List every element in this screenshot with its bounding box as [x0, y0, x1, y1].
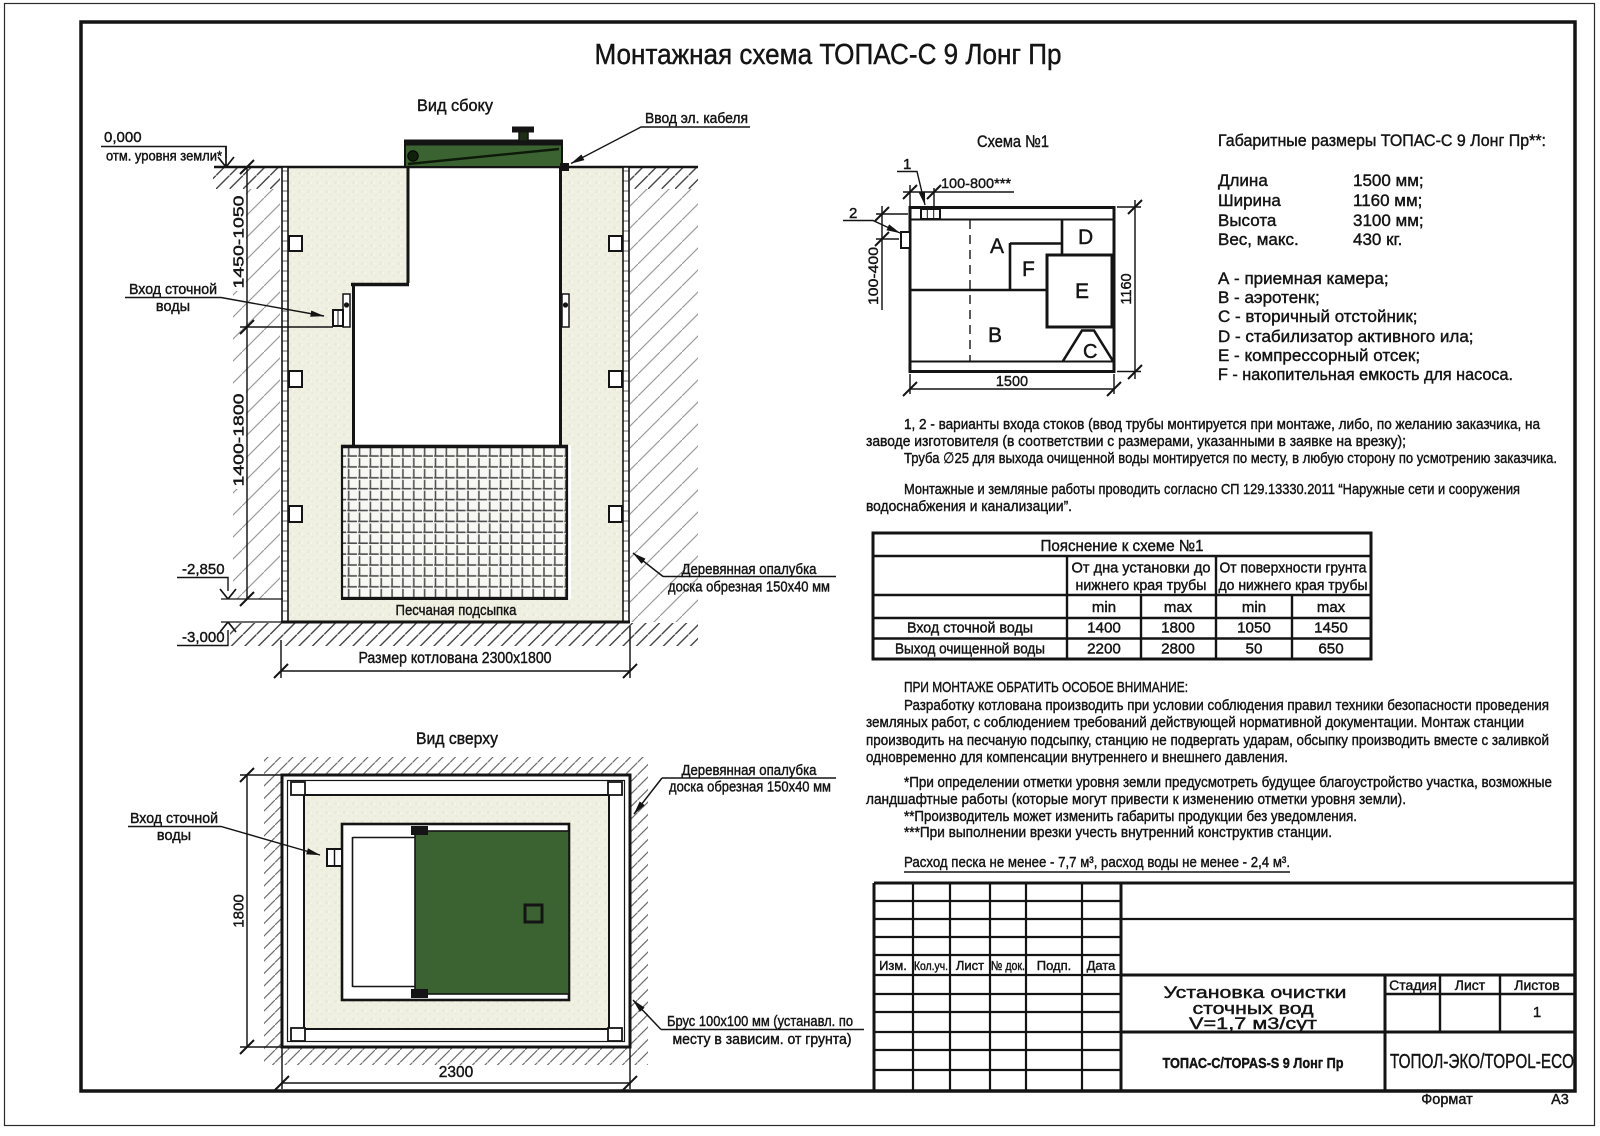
svg-text:1800: 1800 — [231, 894, 248, 927]
svg-text:F: F — [1022, 258, 1035, 281]
svg-text:F - накопительная емкость для: F - накопительная емкость для насоса. — [1218, 365, 1513, 384]
svg-text:D: D — [1078, 226, 1093, 249]
svg-text:ПРИ МОНТАЖЕ ОБРАТИТЬ ОСОБОЕ ВН: ПРИ МОНТАЖЕ ОБРАТИТЬ ОСОБОЕ ВНИМАНИЕ: — [904, 679, 1188, 696]
svg-text:1050: 1050 — [1237, 620, 1271, 637]
svg-text:заводе изготовителя (в соответ: заводе изготовителя (в соответствии с ра… — [866, 433, 1406, 450]
svg-text:1, 2 - варианты входа стоков: 1, 2 - варианты входа стоков (ввод трубы… — [904, 416, 1540, 433]
svg-text:отм. уровня земли*: отм. уровня земли* — [106, 149, 223, 164]
svg-text:доска обрезная 150х40 мм: доска обрезная 150х40 мм — [669, 780, 831, 796]
svg-text:D - стабилизатор активного ила: D - стабилизатор активного ила; — [1218, 327, 1474, 346]
svg-text:одновременно для компенсации в: одновременно для компенсации внутреннего… — [866, 749, 1288, 766]
svg-text:Лист: Лист — [956, 958, 984, 973]
svg-text:Ввод эл. кабеля: Ввод эл. кабеля — [645, 111, 748, 127]
svg-text:Вход сточной: Вход сточной — [129, 282, 217, 298]
svg-text:№ док.: № док. — [991, 958, 1025, 973]
svg-text:Монтажная схема ТОПАС-С 9 Лонг: Монтажная схема ТОПАС-С 9 Лонг Пр — [595, 39, 1062, 71]
svg-text:***При выполнении врезки учест: ***При выполнении врезки учесть внутренн… — [904, 824, 1332, 841]
svg-text:Длина: Длина — [1218, 171, 1268, 190]
svg-text:430 кг.: 430 кг. — [1353, 230, 1402, 249]
svg-text:Вход сточной воды: Вход сточной воды — [907, 620, 1033, 637]
svg-text:1160: 1160 — [1119, 273, 1135, 304]
svg-text:Дата: Дата — [1087, 958, 1117, 973]
svg-text:Ширина: Ширина — [1218, 191, 1281, 210]
svg-text:1400: 1400 — [1087, 620, 1121, 637]
svg-text:1400-1800: 1400-1800 — [231, 394, 248, 487]
svg-text:0,000: 0,000 — [104, 129, 142, 146]
svg-text:В - аэротенк;: В - аэротенк; — [1218, 288, 1320, 307]
svg-text:Лист: Лист — [1455, 977, 1486, 993]
svg-text:1500: 1500 — [996, 374, 1028, 390]
svg-text:Кол.уч.: Кол.уч. — [914, 959, 948, 973]
svg-text:От поверхности грунта: От поверхности грунта — [1220, 560, 1368, 577]
svg-text:max: max — [1317, 599, 1346, 616]
svg-text:Габаритные размеры ТОПАС-С 9 Л: Габаритные размеры ТОПАС-С 9 Лонг Пр**: — [1218, 131, 1546, 150]
svg-text:Деревянная опалубка: Деревянная опалубка — [682, 763, 818, 779]
svg-text:Подп.: Подп. — [1037, 958, 1072, 973]
svg-text:А - приемная камера;: А - приемная камера; — [1218, 269, 1389, 288]
svg-text:Вид сбоку: Вид сбоку — [417, 96, 493, 115]
svg-text:Высота: Высота — [1218, 211, 1277, 230]
svg-text:100-800***: 100-800*** — [941, 175, 1012, 191]
svg-text:1160 мм;: 1160 мм; — [1353, 191, 1422, 210]
svg-text:E: E — [1075, 280, 1089, 303]
svg-text:100-400: 100-400 — [865, 247, 881, 305]
svg-text:Е - компрессорный отсек;: Е - компрессорный отсек; — [1218, 346, 1420, 365]
svg-text:Листов: Листов — [1514, 977, 1560, 993]
svg-text:3100 мм;: 3100 мм; — [1353, 211, 1424, 230]
svg-text:1: 1 — [1533, 1004, 1541, 1021]
svg-text:Стадия: Стадия — [1389, 977, 1437, 993]
svg-text:Вес, макс.: Вес, макс. — [1218, 230, 1299, 249]
svg-text:нижнего края трубы: нижнего края трубы — [1076, 577, 1207, 594]
svg-text:-2,850: -2,850 — [182, 561, 225, 578]
svg-text:Размер котлована 2300х1800: Размер котлована 2300х1800 — [359, 650, 552, 667]
svg-text:Вид сверху: Вид сверху — [416, 729, 498, 748]
svg-text:1: 1 — [903, 156, 911, 173]
svg-text:земляных работ, с соблюдением: земляных работ, с соблюдением требований… — [866, 714, 1524, 731]
svg-text:Расход песка не менее - 7,7 м³: Расход песка не менее - 7,7 м³, расход в… — [904, 854, 1290, 871]
svg-text:воды: воды — [156, 299, 190, 315]
svg-text:ТОПАС-С/TOPAS-S 9 Лонг Пр: ТОПАС-С/TOPAS-S 9 Лонг Пр — [1163, 1055, 1344, 1072]
svg-text:Монтажные и земляные работы пр: Монтажные и земляные работы проводить со… — [904, 481, 1520, 498]
svg-text:1450: 1450 — [1314, 620, 1348, 637]
svg-text:до нижнего края трубы: до нижнего края трубы — [1219, 577, 1368, 594]
svg-text:ТОПОЛ-ЭКО/TOPOL-ECO: ТОПОЛ-ЭКО/TOPOL-ECO — [1390, 1051, 1574, 1073]
svg-text:водоснабжения и канализации”.: водоснабжения и канализации”. — [866, 498, 1072, 515]
svg-text:А3: А3 — [1551, 1092, 1569, 1108]
svg-text:min: min — [1092, 599, 1116, 616]
svg-text:B: B — [988, 324, 1002, 347]
svg-text:Деревянная опалубка: Деревянная опалубка — [682, 562, 818, 578]
svg-text:доска обрезная 150х40 мм: доска обрезная 150х40 мм — [668, 580, 830, 596]
svg-text:1450-1050: 1450-1050 — [231, 196, 248, 289]
svg-text:C: C — [1083, 341, 1097, 363]
svg-text:Песчаная подсыпка: Песчаная подсыпка — [396, 602, 518, 619]
svg-text:месту в зависим. от грунта): месту в зависим. от грунта) — [673, 1032, 852, 1048]
svg-text:2200: 2200 — [1087, 641, 1121, 658]
svg-text:V=1,7 м3/сут: V=1,7 м3/сут — [1189, 1015, 1318, 1033]
svg-text:производить на песчаную подсып: производить на песчаную подсыпку, станци… — [866, 732, 1549, 749]
svg-text:50: 50 — [1246, 641, 1263, 658]
svg-text:Брус 100х100 мм (устанавл. по: Брус 100х100 мм (устанавл. по — [667, 1014, 853, 1030]
svg-text:Формат: Формат — [1421, 1092, 1473, 1108]
svg-text:2300: 2300 — [439, 1064, 474, 1081]
svg-text:max: max — [1164, 599, 1193, 616]
svg-text:2: 2 — [849, 205, 857, 222]
svg-text:Выход очищенной воды: Выход очищенной воды — [895, 641, 1045, 658]
svg-text:Разработку котлована производи: Разработку котлована производить при усл… — [904, 697, 1549, 714]
svg-text:Вход сточной: Вход сточной — [130, 811, 218, 827]
svg-text:**Производитель может изменить: **Производитель может изменить габариты … — [904, 808, 1357, 825]
svg-text:1800: 1800 — [1161, 620, 1195, 637]
svg-text:Труба ∅25 для выхода очищенной: Труба ∅25 для выхода очищенной воды монт… — [904, 450, 1557, 467]
svg-text:Изм.: Изм. — [879, 958, 907, 973]
svg-text:A: A — [990, 235, 1004, 258]
svg-text:2800: 2800 — [1161, 641, 1195, 658]
svg-text:ландшафтные работы (которые мо: ландшафтные работы (которые могут привес… — [866, 791, 1406, 808]
svg-text:1500 мм;: 1500 мм; — [1353, 171, 1424, 190]
svg-text:Схема №1: Схема №1 — [977, 132, 1049, 151]
svg-text:650: 650 — [1318, 641, 1343, 658]
svg-text:Пояснение к схеме №1: Пояснение к схеме №1 — [1041, 538, 1204, 555]
svg-text:С - вторичный отстойник;: С - вторичный отстойник; — [1218, 307, 1418, 326]
svg-text:min: min — [1242, 599, 1266, 616]
svg-text:воды: воды — [157, 828, 191, 844]
svg-text:От дна установки до: От дна установки до — [1072, 560, 1211, 577]
svg-text:*При определении отметки уровн: *При определении отметки уровня земли пр… — [904, 774, 1552, 791]
svg-text:-3,000: -3,000 — [182, 629, 225, 646]
